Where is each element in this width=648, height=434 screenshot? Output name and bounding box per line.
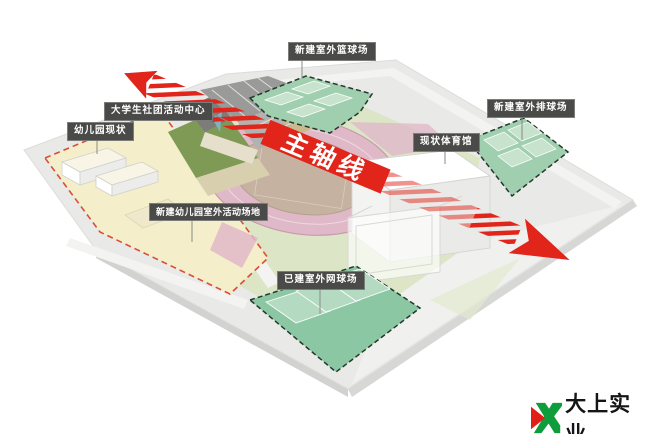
label-kindergarten-outdoor: 新建幼儿园室外活动场地: [149, 203, 268, 221]
label-basketball-courts: 新建室外篮球场: [288, 42, 376, 61]
label-activity-center: 大学生社团活动中心: [104, 102, 213, 121]
label-gymnasium: 现状体育馆: [413, 133, 480, 152]
company-logo: 大上实业: [531, 388, 648, 434]
label-kindergarten: 幼儿园现状: [67, 122, 134, 141]
site-plan-diagram: 主轴线 新建室外篮球场 新建室外排球场 现状体育馆 大学生社团活动中心 幼儿园现…: [0, 0, 648, 434]
label-tennis-courts: 已建室外网球场: [277, 271, 365, 290]
label-volleyball-courts: 新建室外排球场: [487, 99, 575, 118]
company-logo-icon: [531, 402, 562, 434]
site-plan-canvas: 主轴线: [0, 0, 648, 434]
company-logo-text: 大上实业: [565, 388, 648, 434]
